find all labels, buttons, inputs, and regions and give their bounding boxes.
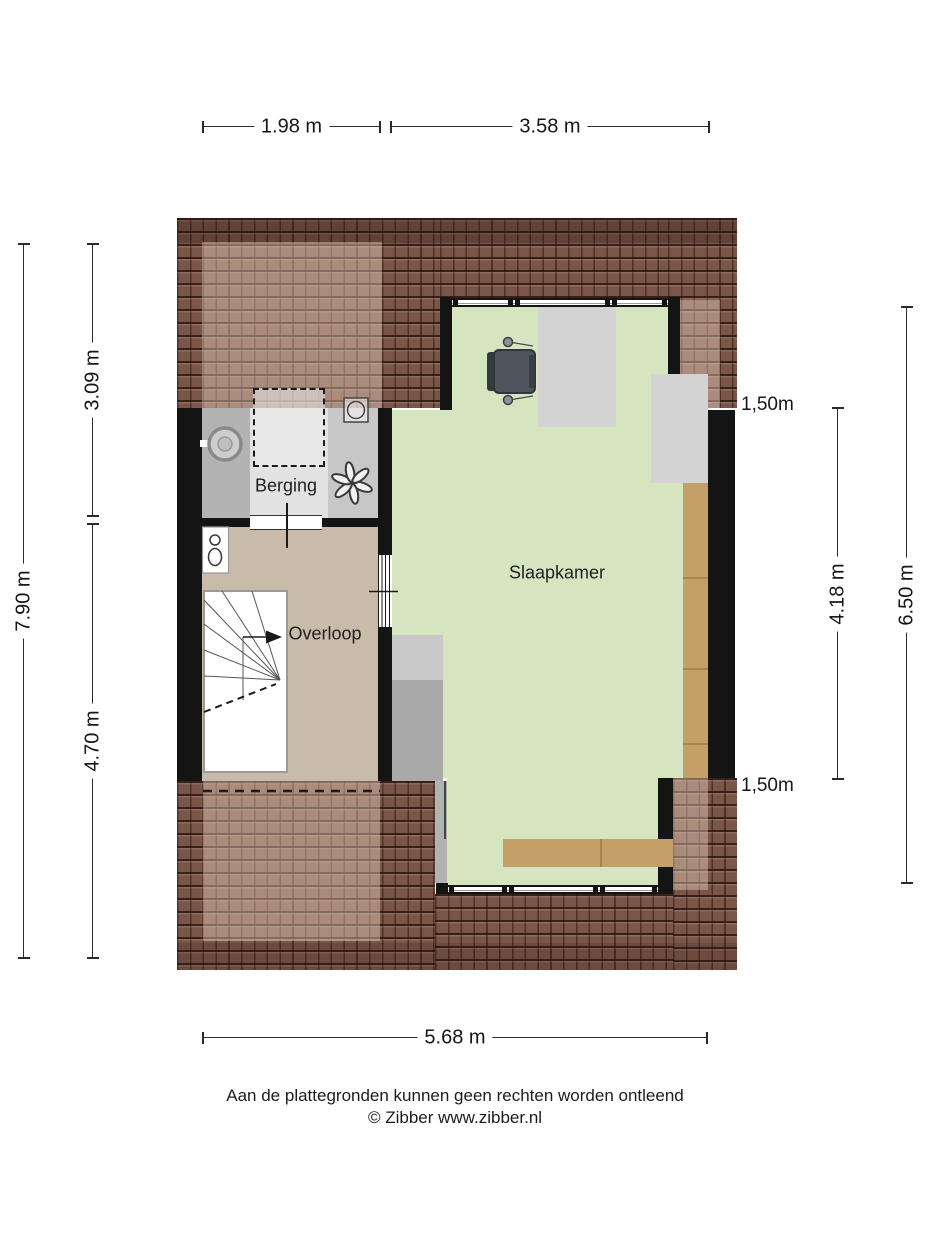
wall-left-exterior xyxy=(177,408,202,781)
wardrobe-seam xyxy=(683,743,708,745)
interior-glass-door xyxy=(378,555,392,627)
gray-patch-left-light xyxy=(392,635,443,680)
dim-left-lower: 4.70 m xyxy=(92,524,93,958)
roof-overlay-berging xyxy=(202,242,382,408)
dim-right-outer-label: 6.50 m xyxy=(896,557,919,632)
room-label-overloop: Overloop xyxy=(288,624,361,645)
roof-overlay-bottom-right xyxy=(673,778,708,890)
window-mullion xyxy=(509,887,514,892)
dim-top-1-label: 1.98 m xyxy=(254,116,329,139)
window-glass-line xyxy=(448,890,658,891)
desk xyxy=(503,839,673,867)
desk-seam xyxy=(600,839,602,867)
dim-top-2: 3.58 m xyxy=(391,126,709,127)
window-mullion xyxy=(600,887,605,892)
dim-left-upper: 3.09 m xyxy=(92,244,93,516)
wall-interior-lower xyxy=(378,627,392,781)
door-opening-berging xyxy=(250,515,322,530)
dim-top-1: 1.98 m xyxy=(203,126,380,127)
dim-bottom: 5.68 m xyxy=(203,1037,707,1038)
roof-eave-shade xyxy=(177,943,737,970)
window-mullion xyxy=(593,887,598,892)
window-mullion xyxy=(453,300,458,305)
gray-patch-left-dark xyxy=(392,680,443,781)
height-marker-bottom: 1,50m xyxy=(741,775,794,797)
slaapkamer-floor-bottom xyxy=(447,778,658,894)
window-glass-line xyxy=(452,303,668,304)
dormer-cheek-top-right xyxy=(668,297,680,374)
dormer-cheek-top-left xyxy=(440,297,452,410)
storage-hatch-dashed xyxy=(253,388,325,467)
height-marker-top: 1,50m xyxy=(741,394,794,416)
footer-credit: © Zibber www.zibber.nl xyxy=(368,1108,542,1128)
dormer-window-top xyxy=(452,298,668,307)
wall-interior-upper xyxy=(378,408,392,555)
window-mullion xyxy=(662,300,667,305)
dim-bottom-label: 5.68 m xyxy=(417,1027,492,1050)
dim-left-lower-label: 4.70 m xyxy=(82,703,105,778)
dim-left-outer: 7.90 m xyxy=(23,244,24,958)
wardrobe-seam xyxy=(683,668,708,670)
wardrobe-seam xyxy=(683,577,708,579)
footer-disclaimer: Aan de plattegronden kunnen geen rechten… xyxy=(226,1086,683,1106)
dim-top-2-label: 3.58 m xyxy=(512,116,587,139)
roof-overlay-bottom-left xyxy=(203,781,380,941)
window-mullion xyxy=(515,300,520,305)
overloop-floor xyxy=(202,527,378,781)
dim-right-inner: 4.18 m xyxy=(837,408,838,779)
wardrobe xyxy=(683,483,708,778)
floorplan-canvas: Berging Overloop Slaapkamer 1.98 m 3.58 … xyxy=(0,0,930,1240)
wall-right-exterior xyxy=(708,410,735,778)
dim-right-outer: 6.50 m xyxy=(906,307,907,883)
dim-right-inner-label: 4.18 m xyxy=(827,556,850,631)
dim-left-upper-label: 3.09 m xyxy=(82,342,105,417)
gray-patch-right xyxy=(651,374,708,483)
roof-ridge-shade xyxy=(177,218,737,243)
gray-patch-top-center xyxy=(538,306,616,427)
window-mullion xyxy=(612,300,617,305)
dormer-window-bottom xyxy=(448,885,658,894)
window-mullion xyxy=(449,887,454,892)
dormer-cheek-bottom-right xyxy=(658,778,673,894)
dormer-corner-bottom-left xyxy=(436,883,448,894)
window-mullion xyxy=(502,887,507,892)
berging-floor-mid xyxy=(328,408,378,518)
window-mullion xyxy=(652,887,657,892)
room-label-berging: Berging xyxy=(255,476,317,497)
window-mullion xyxy=(508,300,513,305)
window-mullion xyxy=(605,300,610,305)
dim-left-outer-label: 7.90 m xyxy=(13,563,36,638)
dormer-cheek-edge-line xyxy=(444,781,446,839)
room-label-slaapkamer: Slaapkamer xyxy=(509,563,605,584)
